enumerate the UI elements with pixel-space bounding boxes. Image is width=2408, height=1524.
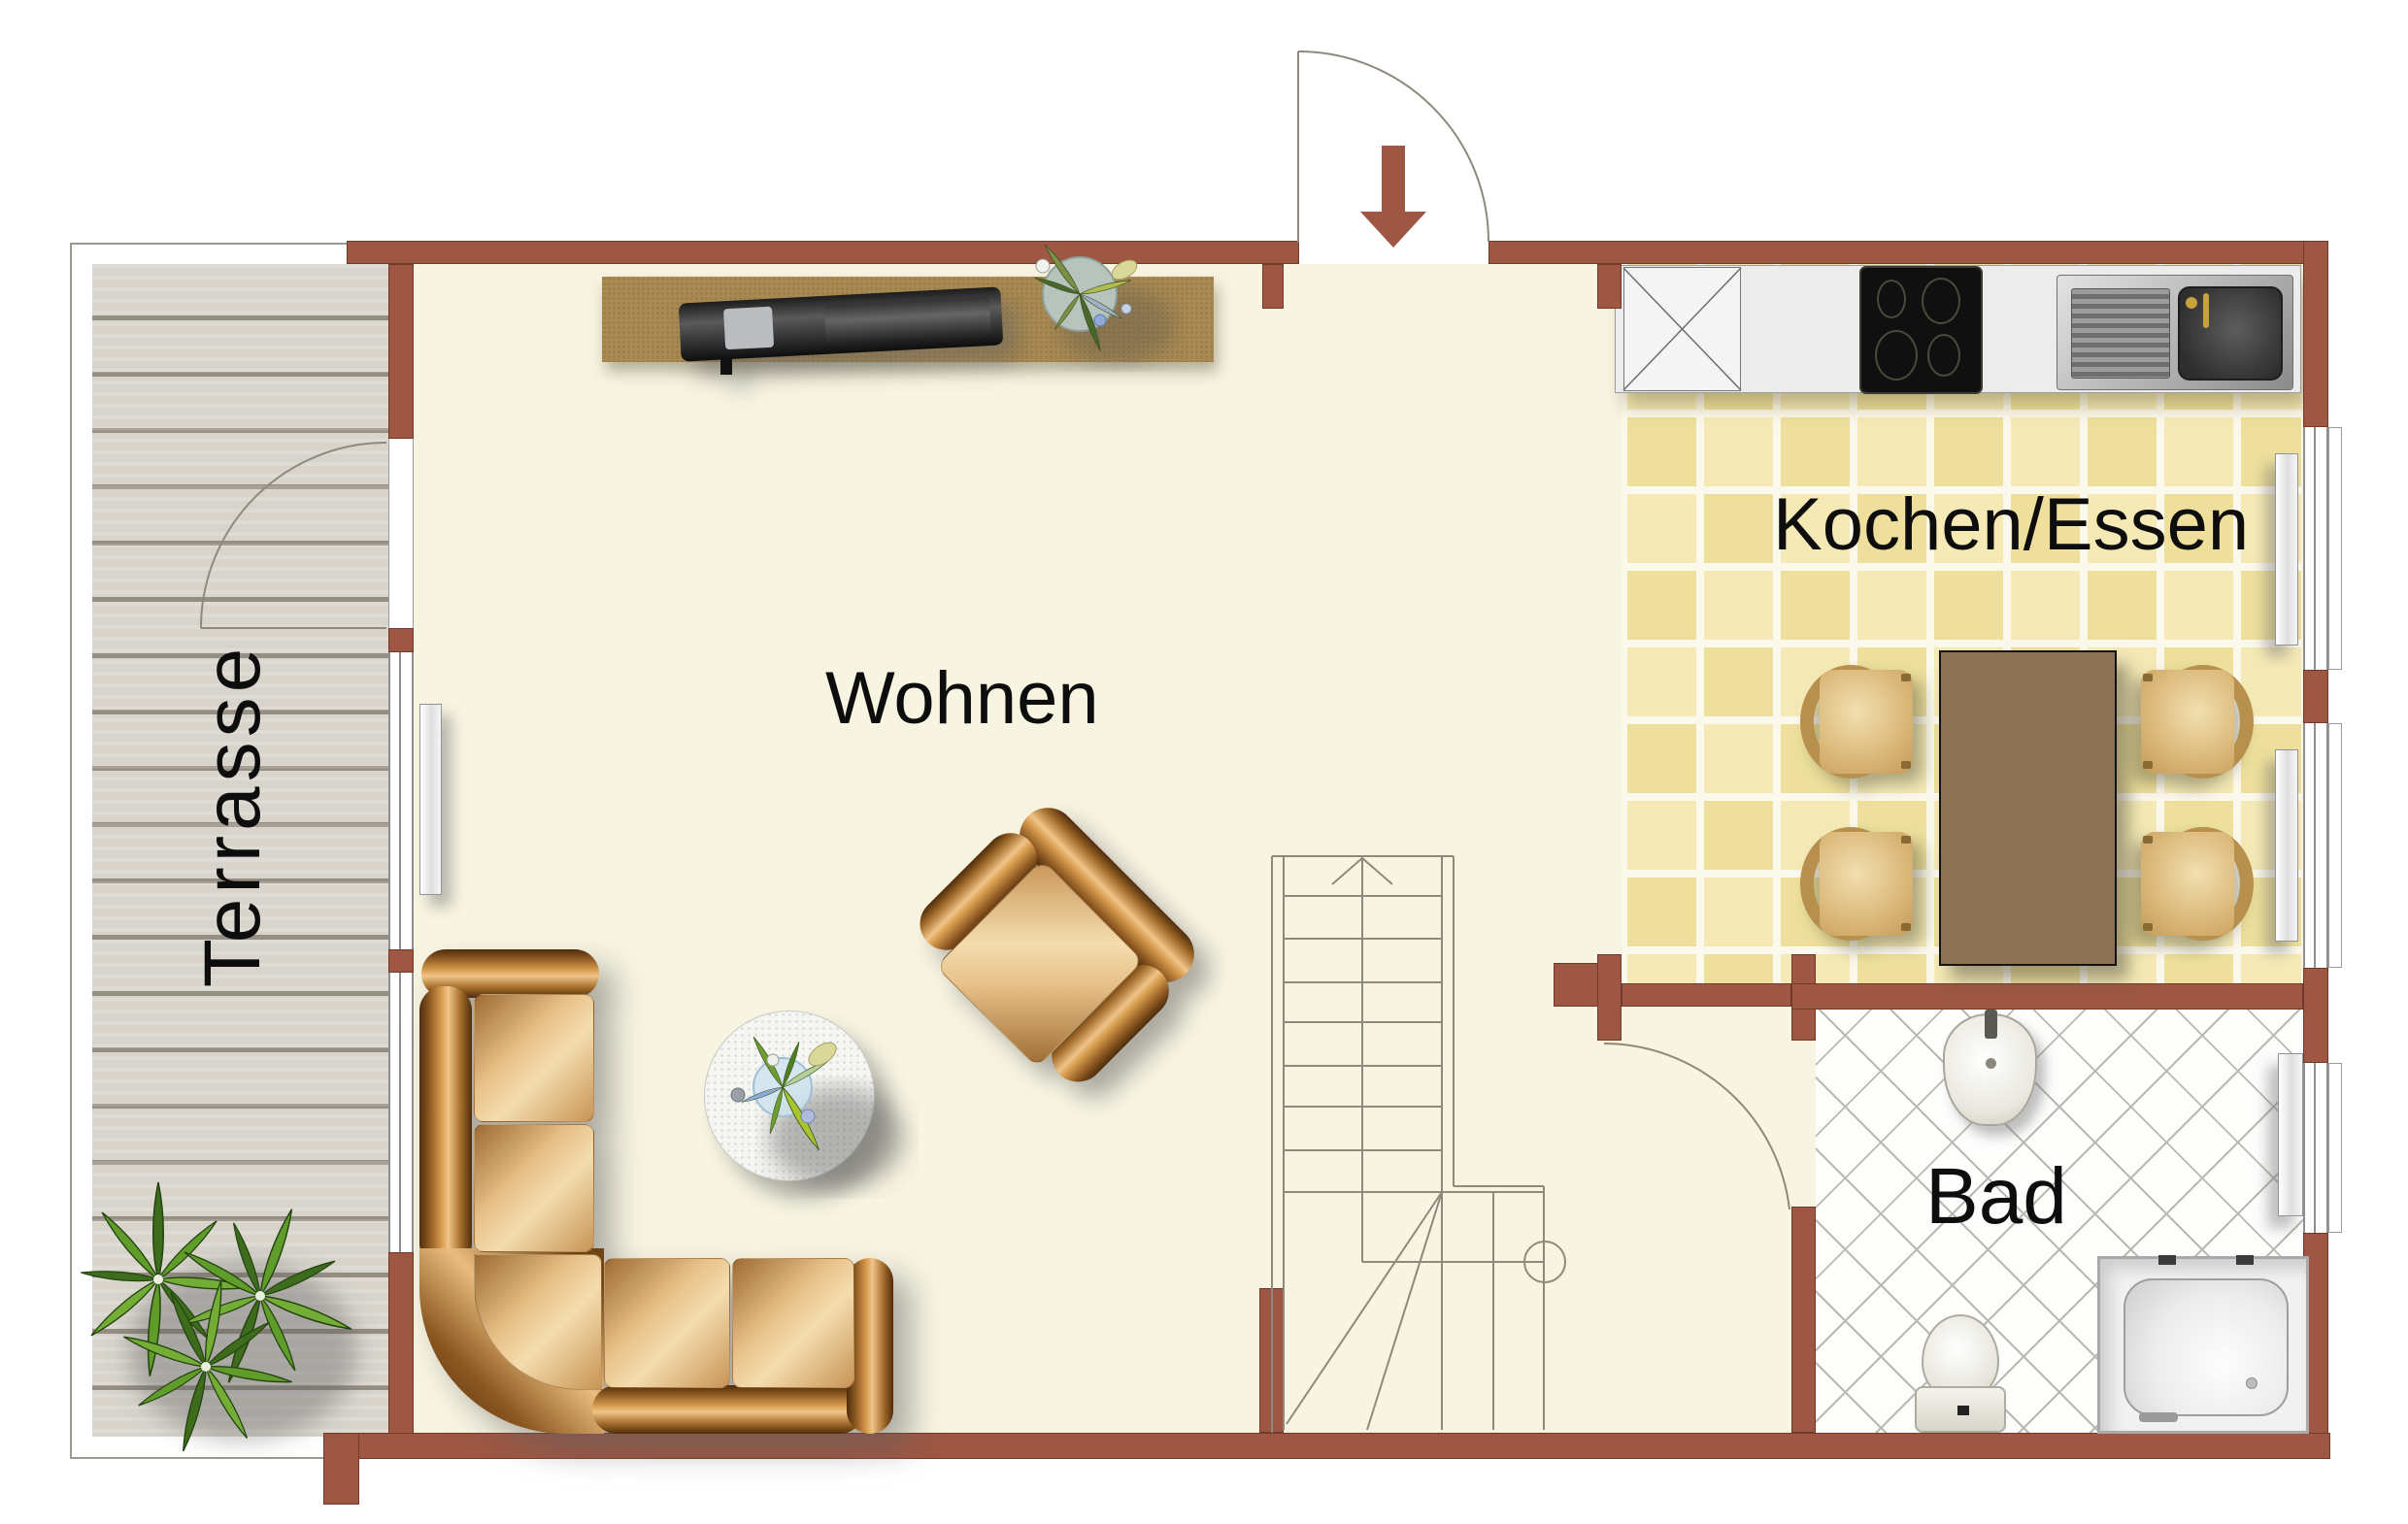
room-label-living: Wohnen <box>825 662 1099 736</box>
room-label-terrace: Terrasse <box>193 644 273 987</box>
sideboard-plant <box>1033 243 1175 364</box>
room-label-kitchen: Kochen/Essen <box>1773 488 2249 562</box>
floorplan: Wohnen Kochen/Essen Bad Terrasse <box>0 0 2408 1524</box>
room-label-bath: Bad <box>1925 1157 2067 1237</box>
terrace-plant <box>81 1182 357 1452</box>
rug-plant <box>731 1035 905 1188</box>
plants-layer <box>0 0 2408 1524</box>
